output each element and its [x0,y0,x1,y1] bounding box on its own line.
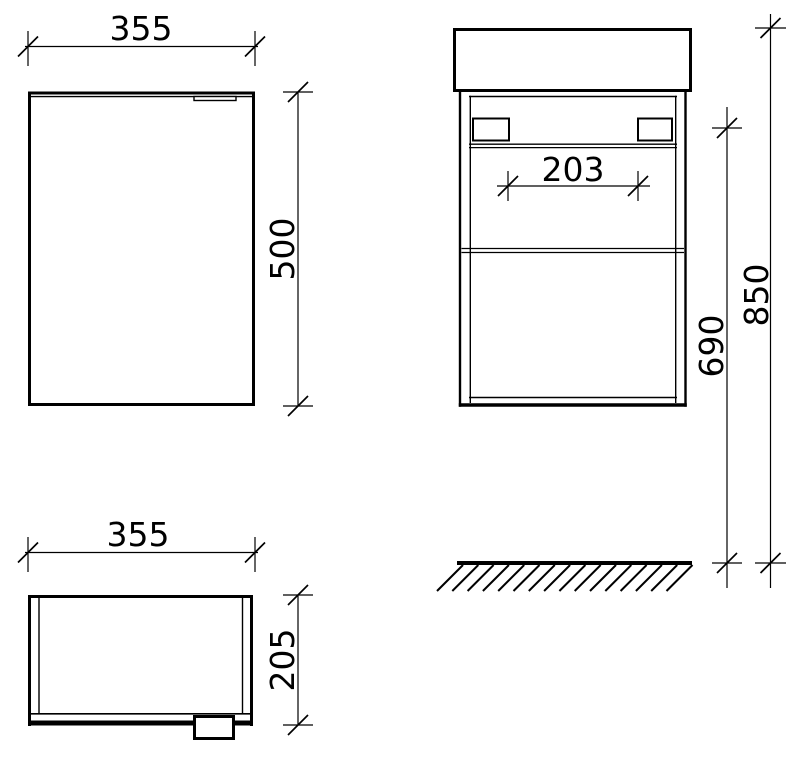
front-view [30,93,254,405]
drawing-canvas: 355 500 355 205 [0,0,800,768]
overall-height-dimension: 850 [737,14,786,588]
front-height-value: 500 [263,218,302,281]
ground-hatching [437,565,693,591]
plan-depth-dimension: 205 [263,585,313,735]
side-view [455,30,691,407]
underside-height-dimension: 690 [692,107,742,588]
plan-view [28,595,253,739]
opening-width-dimension: 203 [497,150,650,201]
front-cabinet-outline [30,93,254,405]
wall-bracket-right [638,119,672,141]
floor-line [437,563,693,591]
underside-height-value: 690 [692,315,731,378]
front-width-dimension: 355 [18,9,265,66]
plan-width-value: 355 [107,515,170,554]
front-height-dimension: 500 [263,82,313,416]
plan-width-dimension: 355 [18,515,265,572]
opening-width-value: 203 [542,150,605,189]
plan-door-handle [195,717,234,739]
wall-bracket-left [473,119,509,141]
overall-height-value: 850 [737,264,776,327]
plan-depth-value: 205 [263,629,302,692]
front-width-value: 355 [110,9,173,48]
front-door-handle [194,97,236,101]
basin-outline [455,30,691,91]
technical-drawing: 355 500 355 205 [0,0,800,768]
